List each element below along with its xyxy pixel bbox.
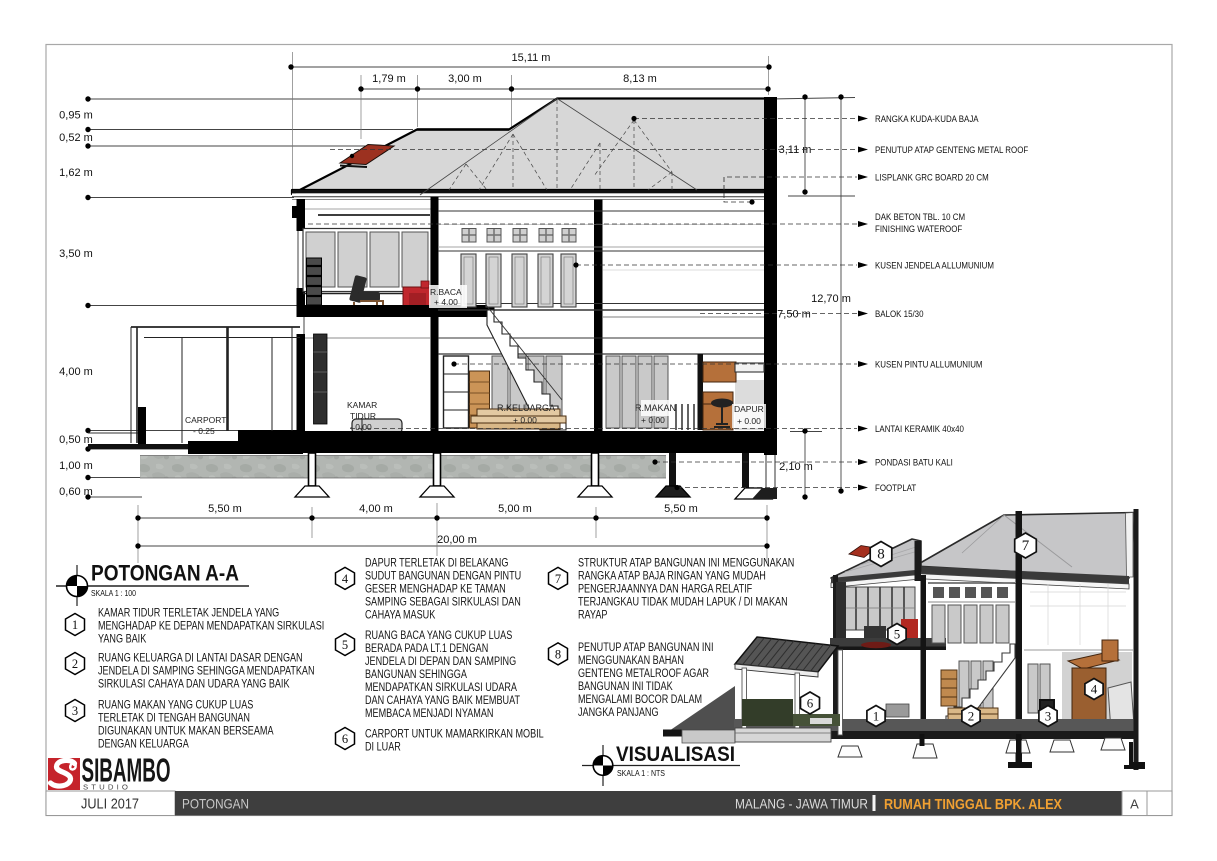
svg-text:R.KELUARGA: R.KELUARGA (497, 403, 555, 413)
svg-text:BANGUNAN SEHINGGA: BANGUNAN SEHINGGA (365, 668, 468, 682)
svg-text:3: 3 (1045, 709, 1052, 724)
svg-text:4: 4 (342, 572, 349, 586)
svg-text:RAYAP: RAYAP (578, 608, 607, 622)
svg-text:FINISHING WATEROOF: FINISHING WATEROOF (875, 223, 962, 234)
svg-text:+ 4.00: + 4.00 (434, 297, 458, 307)
svg-text:- 0.25: - 0.25 (193, 426, 215, 436)
svg-text:MENGGUNAKAN BAHAN: MENGGUNAKAN BAHAN (578, 654, 684, 668)
svg-text:TERJANGKAU TIDAK MUDAH LAPUK /: TERJANGKAU TIDAK MUDAH LAPUK / DI MAKAN (578, 595, 788, 609)
svg-text:CAHAYA MASUK: CAHAYA MASUK (365, 608, 435, 622)
svg-text:CARPORT UNTUK MAMARKIRKAN MOBI: CARPORT UNTUK MAMARKIRKAN MOBIL (365, 727, 544, 741)
svg-text:GENTENG METALROOF AGAR: GENTENG METALROOF AGAR (578, 667, 709, 681)
svg-text:BALOK 15/30: BALOK 15/30 (875, 308, 924, 319)
svg-text:STUDIO: STUDIO (83, 783, 131, 792)
svg-text:6: 6 (807, 696, 814, 711)
svg-text:TERLETAK DI TENGAH BANGUNAN: TERLETAK DI TENGAH BANGUNAN (98, 711, 250, 725)
svg-text:PENUTUP ATAP GENTENG METAL ROO: PENUTUP ATAP GENTENG METAL ROOF (875, 144, 1028, 155)
svg-text:LISPLANK GRC BOARD 20 CM: LISPLANK GRC BOARD 20 CM (875, 172, 989, 183)
svg-text:PONDASI BATU KALI: PONDASI BATU KALI (875, 457, 953, 468)
svg-text:3,00 m: 3,00 m (448, 73, 482, 85)
svg-text:MALANG - JAWA TIMUR: MALANG - JAWA TIMUR (735, 797, 868, 812)
svg-text:20,00 m: 20,00 m (437, 534, 477, 546)
svg-text:SIRKULASI CAHAYA DAN UDARA YAN: SIRKULASI CAHAYA DAN UDARA YANG BAIK (98, 677, 290, 691)
svg-text:+ 0.00: + 0.00 (737, 416, 761, 426)
svg-text:15,11 m: 15,11 m (512, 52, 551, 64)
svg-text:8,13 m: 8,13 m (623, 73, 657, 85)
svg-text:JENDELA DI SAMPING SEHINGGA ME: JENDELA DI SAMPING SEHINGGA MENDAPATKAN (98, 664, 315, 678)
svg-text:JANGKA PANJANG: JANGKA PANJANG (578, 706, 659, 720)
svg-text:FOOTPLAT: FOOTPLAT (875, 482, 917, 493)
svg-text:JULI 2017: JULI 2017 (81, 797, 139, 813)
svg-text:3: 3 (72, 704, 78, 718)
svg-text:6: 6 (342, 732, 348, 746)
svg-text:POTONGAN A-A: POTONGAN A-A (91, 561, 239, 586)
svg-text:GESER MENGHADAP KE TAMAN: GESER MENGHADAP KE TAMAN (365, 582, 506, 596)
svg-text:DIGUNAKAN UNTUK MAKAN BERSEAMA: DIGUNAKAN UNTUK MAKAN BERSEAMA (98, 724, 274, 738)
svg-text:MENGHADAP KE DEPAN MENDAPATKAN: MENGHADAP KE DEPAN MENDAPATKAN SIRKULASI (98, 619, 324, 633)
svg-text:POTONGAN: POTONGAN (182, 796, 249, 812)
svg-text:1: 1 (873, 709, 880, 724)
svg-text:STRUKTUR ATAP BANGUNAN INI MEN: STRUKTUR ATAP BANGUNAN INI MENGGUNAKAN (578, 556, 794, 570)
svg-text:+ 0.00: + 0.00 (641, 415, 665, 425)
svg-text:5: 5 (894, 627, 901, 642)
svg-text:DI LUAR: DI LUAR (365, 740, 401, 754)
svg-text:8: 8 (555, 647, 561, 661)
svg-text:7,50 m: 7,50 m (777, 309, 811, 321)
svg-text:12,70 m: 12,70 m (811, 293, 851, 305)
svg-text:SKALA 1 : NTS: SKALA 1 : NTS (617, 769, 665, 778)
svg-text:SKALA 1 : 100: SKALA 1 : 100 (91, 589, 136, 598)
svg-text:RUANG KELUARGA DI LANTAI DASAR: RUANG KELUARGA DI LANTAI DASAR DENGAN (98, 651, 303, 665)
svg-text:4,00 m: 4,00 m (359, 503, 393, 515)
svg-text:1,62 m: 1,62 m (59, 167, 93, 179)
svg-text:2: 2 (968, 709, 975, 724)
svg-text:2: 2 (72, 657, 78, 671)
svg-text:SUDUT BANGUNAN DENGAN PINTU: SUDUT BANGUNAN DENGAN PINTU (365, 569, 521, 583)
svg-text:4,00 m: 4,00 m (59, 366, 93, 378)
svg-text:R.BACA: R.BACA (430, 287, 462, 297)
svg-text:SAMPING SEBAGAI SIRKULASI DAN: SAMPING SEBAGAI SIRKULASI DAN (365, 595, 521, 609)
svg-text:4: 4 (1091, 682, 1098, 697)
svg-text:2,10 m: 2,10 m (779, 461, 813, 473)
svg-text:JENDELA DI DEPAN DAN SAMPING: JENDELA DI DEPAN DAN SAMPING (365, 655, 516, 669)
svg-text:MEMBACA MENJADI NYAMAN: MEMBACA MENJADI NYAMAN (365, 707, 493, 721)
svg-text:5,50 m: 5,50 m (208, 503, 242, 515)
svg-text:+ 0.00: + 0.00 (513, 415, 537, 425)
svg-text:VISUALISASI: VISUALISASI (616, 743, 735, 766)
svg-text:PENGERJAANNYA DAN HARGA RELATI: PENGERJAANNYA DAN HARGA RELATIF (578, 582, 753, 596)
svg-text:5,00 m: 5,00 m (498, 503, 532, 515)
svg-text:0,50 m: 0,50 m (59, 434, 93, 446)
svg-text:LANTAI KERAMIK 40x40: LANTAI KERAMIK 40x40 (875, 423, 964, 434)
svg-text:0,60 m: 0,60 m (59, 486, 93, 498)
svg-text:KUSEN JENDELA ALLUMUNIUM: KUSEN JENDELA ALLUMUNIUM (875, 260, 994, 271)
svg-text:MENDAPATKAN SIRKULASI UDARA: MENDAPATKAN SIRKULASI UDARA (365, 681, 518, 695)
svg-text:1,00 m: 1,00 m (59, 460, 93, 472)
svg-text:RANGKA ATAP BAJA RINGAN YANG M: RANGKA ATAP BAJA RINGAN YANG MUDAH (578, 569, 766, 583)
svg-text:TIDUR: TIDUR (350, 411, 376, 421)
svg-text:DAK BETON TBL. 10 CM: DAK BETON TBL. 10 CM (875, 211, 965, 222)
svg-text:MENGALAMI BOCOR DALAM: MENGALAMI BOCOR DALAM (578, 693, 702, 707)
svg-text:DENGAN KELUARGA: DENGAN KELUARGA (98, 737, 190, 751)
svg-text:7: 7 (1022, 538, 1030, 554)
svg-text:DAPUR: DAPUR (734, 404, 764, 414)
svg-text:RUANG MAKAN YANG CUKUP LUAS: RUANG MAKAN YANG CUKUP LUAS (98, 698, 253, 712)
svg-text:R.MAKAN: R.MAKAN (635, 403, 676, 413)
svg-text:1,79 m: 1,79 m (372, 73, 406, 85)
svg-text:KUSEN PINTU ALLUMUNIUM: KUSEN PINTU ALLUMUNIUM (875, 359, 983, 370)
svg-text:YANG BAIK: YANG BAIK (98, 632, 146, 646)
svg-text:BERADA PADA LT.1 DENGAN: BERADA PADA LT.1 DENGAN (365, 642, 488, 656)
svg-text:0,52 m: 0,52 m (59, 132, 93, 144)
svg-text:CARPORT: CARPORT (185, 415, 226, 425)
svg-text:BANGUNAN INI TIDAK: BANGUNAN INI TIDAK (578, 680, 673, 694)
svg-text:- 0.00: - 0.00 (350, 422, 372, 432)
svg-text:RUANG BACA YANG CUKUP LUAS: RUANG BACA YANG CUKUP LUAS (365, 629, 512, 643)
svg-text:DAN CAHAYA YANG BAIK MEMBUAT: DAN CAHAYA YANG BAIK MEMBUAT (365, 694, 520, 708)
svg-text:3,50 m: 3,50 m (59, 248, 93, 260)
svg-text:7: 7 (555, 572, 561, 586)
svg-text:3,11 m: 3,11 m (779, 144, 812, 156)
svg-text:KAMAR: KAMAR (347, 400, 377, 410)
svg-text:5: 5 (342, 638, 348, 652)
svg-text:PENUTUP ATAP BANGUNAN INI: PENUTUP ATAP BANGUNAN INI (578, 641, 714, 655)
svg-text:RANGKA KUDA-KUDA BAJA: RANGKA KUDA-KUDA BAJA (875, 113, 979, 124)
svg-text:8: 8 (877, 547, 885, 563)
svg-text:KAMAR TIDUR TERLETAK JENDELA Y: KAMAR TIDUR TERLETAK JENDELA YANG (98, 606, 279, 620)
svg-text:DAPUR TERLETAK DI BELAKANG: DAPUR TERLETAK DI BELAKANG (365, 556, 508, 570)
svg-text:1: 1 (72, 618, 78, 632)
svg-text:A: A (1130, 797, 1139, 812)
svg-text:5,50 m: 5,50 m (664, 503, 698, 515)
svg-text:0,95 m: 0,95 m (59, 110, 93, 122)
svg-text:RUMAH TINGGAL BPK. ALEX: RUMAH TINGGAL BPK. ALEX (884, 797, 1062, 813)
